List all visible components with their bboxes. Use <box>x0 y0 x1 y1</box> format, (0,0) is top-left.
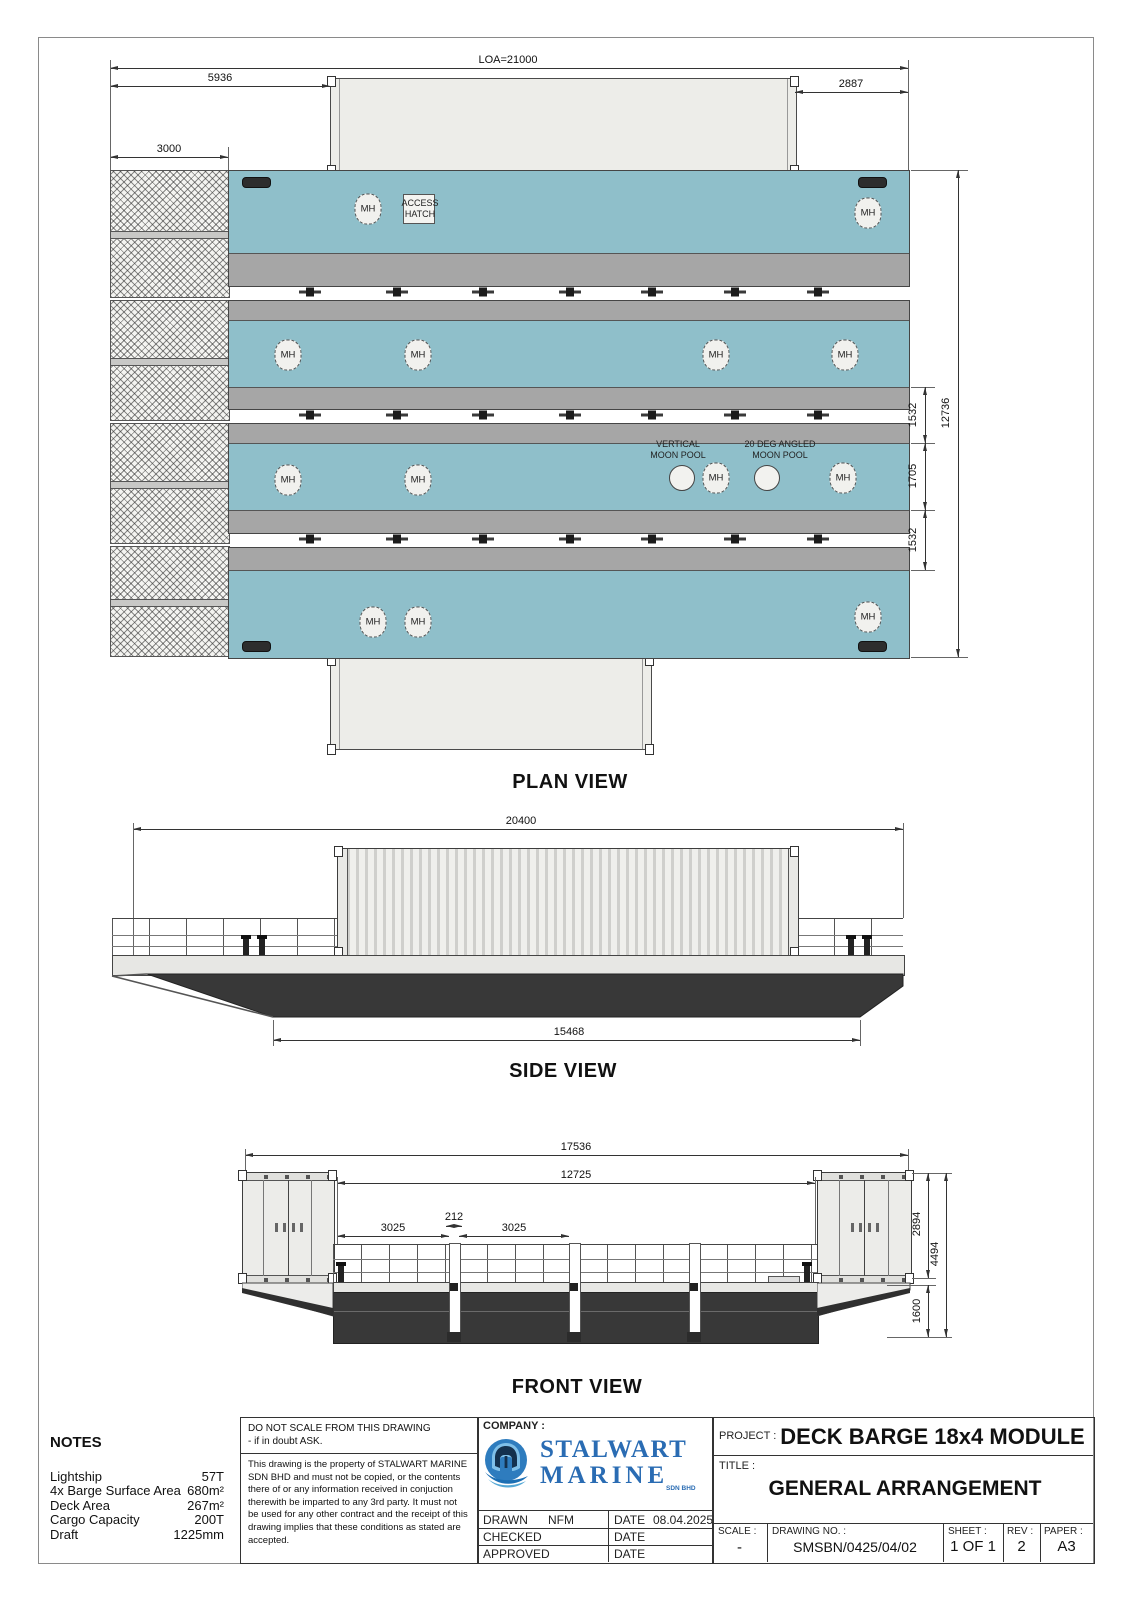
module-connector-icon <box>472 538 494 541</box>
module-connector-icon <box>559 291 581 294</box>
bow-ramp-4 <box>110 546 230 657</box>
module-connector-icon <box>559 414 581 417</box>
deck-cleat <box>242 641 271 652</box>
drawn-date-value: 08.04.2025 <box>653 1513 713 1527</box>
module-connector-icon <box>724 291 746 294</box>
hull-column-foot <box>567 1332 581 1342</box>
container-corner-fitting <box>334 846 343 857</box>
title-label: TITLE : <box>719 1460 755 1472</box>
bow-ramp-3 <box>110 423 230 544</box>
side-container <box>337 848 799 957</box>
module-connector-icon <box>641 414 663 417</box>
hull-column-foot <box>687 1332 701 1342</box>
notes-row: Lightship57T <box>50 1469 224 1484</box>
dim-label-spacing-bottom: 1532 <box>907 528 919 552</box>
dim-label-side-bottom: 15468 <box>554 1026 585 1038</box>
module-connector-icon <box>299 414 321 417</box>
extension-line <box>908 1149 909 1172</box>
notes-title: NOTES <box>50 1434 102 1451</box>
dim-label-bay-left: 3025 <box>381 1222 405 1234</box>
container-corner-fitting <box>238 1170 247 1181</box>
container-corner-fitting <box>790 846 799 857</box>
dim-line-front-overall <box>245 1155 908 1156</box>
manhole-marker: MH <box>832 340 859 371</box>
divider <box>240 1453 477 1454</box>
notes-row: Cargo Capacity200T <box>50 1512 224 1527</box>
drawn-label: DRAWN <box>483 1513 528 1527</box>
module-connector-icon <box>559 538 581 541</box>
approved-date-label: DATE <box>614 1547 645 1561</box>
dim-label-front-deck: 12725 <box>561 1169 592 1181</box>
drawing-no-label: DRAWING NO. : <box>772 1526 846 1537</box>
manhole-label: MH <box>861 208 876 219</box>
do-not-scale-warning: DO NOT SCALE FROM THIS DRAWING- if in do… <box>248 1422 472 1448</box>
manhole-marker: MH <box>855 602 882 633</box>
dim-line-moonpool-bay <box>925 443 926 510</box>
dim-line-front-deck <box>337 1183 815 1184</box>
dim-line-fore <box>110 86 330 87</box>
module-connector-icon <box>807 291 829 294</box>
manhole-marker: MH <box>855 198 882 229</box>
dim-label-overall-height: 4494 <box>929 1242 941 1266</box>
extension-line <box>815 1177 816 1244</box>
container-corner-fitting <box>790 76 799 87</box>
dim-label-spacing-top: 1532 <box>907 403 919 427</box>
extension-line <box>245 1149 246 1172</box>
manhole-label: MH <box>836 473 851 484</box>
extension-line <box>911 657 968 658</box>
front-container-left <box>242 1172 335 1284</box>
dim-label-hull-depth: 1600 <box>911 1299 923 1323</box>
bow-ramp-1 <box>110 170 230 298</box>
dim-line-hull-depth <box>928 1285 929 1337</box>
module-connector-icon <box>724 414 746 417</box>
front-railing-bay <box>333 1244 449 1283</box>
barge-module-2 <box>228 300 910 410</box>
company-label: COMPANY : <box>483 1420 545 1432</box>
dim-label-loa: LOA=21000 <box>478 54 537 66</box>
front-railing-bay <box>579 1244 689 1283</box>
brand-suffix: SDN BHD <box>666 1485 696 1492</box>
dim-line-post <box>446 1226 462 1227</box>
module-connector-icon <box>807 538 829 541</box>
manhole-marker: MH <box>703 463 730 494</box>
divider <box>477 1528 712 1529</box>
module-connector-icon <box>472 291 494 294</box>
side-railing-fore <box>112 918 337 956</box>
bollard <box>848 935 854 955</box>
sheet-value: 1 OF 1 <box>943 1538 1003 1555</box>
checked-label: CHECKED <box>483 1530 542 1544</box>
bollard <box>864 935 870 955</box>
brand-name-line1: STALWART <box>540 1436 687 1464</box>
manhole-label: MH <box>411 617 426 628</box>
module-connector-icon <box>472 414 494 417</box>
container-corner-fitting <box>645 744 654 755</box>
bollard <box>243 935 249 955</box>
manhole-label: MH <box>861 612 876 623</box>
dim-line-side-overall <box>133 829 903 830</box>
bow-ramp-2 <box>110 300 230 421</box>
title-value: GENERAL ARRANGEMENT <box>720 1477 1090 1501</box>
stalwart-marine-logo <box>482 1436 532 1490</box>
hull-column-bolt <box>570 1283 578 1291</box>
module-connector-icon <box>386 291 408 294</box>
bollard <box>259 935 265 955</box>
plan-container-top <box>330 78 797 174</box>
divider <box>608 1510 609 1562</box>
paper-value: A3 <box>1040 1538 1093 1555</box>
checked-date-label: DATE <box>614 1530 645 1544</box>
bollard <box>804 1262 810 1282</box>
module-connector-icon <box>386 538 408 541</box>
extension-line <box>887 1337 952 1338</box>
container-corner-fitting <box>905 1170 914 1181</box>
dim-line-ramp <box>110 157 228 158</box>
notes-row: 4x Barge Surface Area680m² <box>50 1483 224 1498</box>
manhole-marker: MH <box>355 194 382 225</box>
manhole-label: MH <box>281 350 296 361</box>
front-view-caption: FRONT VIEW <box>512 1376 643 1399</box>
manhole-marker: MH <box>275 465 302 496</box>
dim-label-container-height: 2894 <box>911 1212 923 1236</box>
notes-row: Deck Area267m² <box>50 1498 224 1513</box>
manhole-marker: MH <box>405 465 432 496</box>
hull-column-bolt <box>690 1283 698 1291</box>
angled-moon-pool-label: 20 DEG ANGLED MOON POOL <box>734 439 826 460</box>
extension-line <box>912 1278 936 1279</box>
sheet-label: SHEET : <box>948 1526 987 1537</box>
barge-module-1 <box>228 170 910 287</box>
manhole-label: MH <box>709 473 724 484</box>
container-corner-fitting <box>327 744 336 755</box>
bollard <box>338 1262 344 1282</box>
dim-line-aft <box>795 92 908 93</box>
divider <box>712 1523 1093 1524</box>
extension-line <box>110 60 111 170</box>
divider <box>477 1510 712 1511</box>
module-connector-icon <box>724 538 746 541</box>
divider <box>712 1455 1093 1456</box>
dim-label-post: 212 <box>445 1211 463 1223</box>
module-connector-icon <box>641 538 663 541</box>
brand-name-line2: MARINE <box>540 1462 668 1490</box>
container-corner-fitting <box>328 1170 337 1181</box>
module-connector-icon <box>299 291 321 294</box>
paper-label: PAPER : <box>1044 1526 1083 1537</box>
plan-container-bottom <box>330 657 652 750</box>
front-container-right <box>817 1172 912 1284</box>
manhole-label: MH <box>709 350 724 361</box>
notes-row: Draft1225mm <box>50 1527 224 1542</box>
dim-label-moonpool-bay: 1705 <box>907 464 919 488</box>
dim-line-spacing-top <box>925 387 926 443</box>
manhole-label: MH <box>838 350 853 361</box>
manhole-label: MH <box>361 204 376 215</box>
vertical-moon-pool <box>669 465 695 491</box>
deck-cleat <box>858 641 887 652</box>
dim-label-front-overall: 17536 <box>561 1141 592 1153</box>
extension-line <box>273 1020 274 1046</box>
access-hatch-label: ACCESS HATCH <box>394 198 446 219</box>
dim-line-loa <box>110 68 908 69</box>
manhole-marker: MH <box>405 340 432 371</box>
side-hull-shape <box>100 968 930 1028</box>
front-support-right <box>817 1280 911 1344</box>
rev-label: REV : <box>1007 1526 1033 1537</box>
extension-line <box>337 1177 338 1244</box>
extension-line <box>228 147 229 170</box>
dim-label-bay-right: 3025 <box>502 1222 526 1234</box>
manhole-label: MH <box>281 475 296 486</box>
manhole-label: MH <box>366 617 381 628</box>
dim-label-side-overall: 20400 <box>506 815 537 827</box>
module-connector-icon <box>386 414 408 417</box>
drawn-value: NFM <box>548 1513 574 1527</box>
approved-label: APPROVED <box>483 1547 550 1561</box>
module-connector-icon <box>807 414 829 417</box>
side-view-caption: SIDE VIEW <box>509 1060 617 1083</box>
rev-value: 2 <box>1003 1538 1040 1555</box>
dim-label-ramp: 3000 <box>157 143 181 155</box>
extension-line <box>911 570 935 571</box>
dim-line-bay-right <box>459 1236 569 1237</box>
deck-cleat <box>858 177 887 188</box>
manhole-label: MH <box>411 350 426 361</box>
manhole-marker: MH <box>405 607 432 638</box>
deck-cleat <box>242 177 271 188</box>
project-value: DECK BARGE 18x4 MODULE <box>775 1424 1090 1450</box>
vertical-moon-pool-label: VERTICAL MOON POOL <box>647 439 709 460</box>
scale-value: - <box>712 1539 767 1556</box>
front-support-left <box>242 1280 334 1344</box>
extension-line <box>860 1020 861 1046</box>
dim-line-overall-height <box>946 1173 947 1337</box>
manhole-marker: MH <box>703 340 730 371</box>
drawn-date-label: DATE <box>614 1513 645 1527</box>
dim-label-aft: 2887 <box>839 78 863 90</box>
extension-line <box>908 60 909 170</box>
manhole-label: MH <box>411 475 426 486</box>
hull-column-foot <box>447 1332 461 1342</box>
manhole-marker: MH <box>830 463 857 494</box>
dim-line-bay-left <box>337 1236 449 1237</box>
plan-view-caption: PLAN VIEW <box>512 771 628 794</box>
project-label: PROJECT : <box>719 1430 776 1442</box>
ownership-statement: This drawing is the property of STALWART… <box>248 1459 470 1547</box>
front-railing-bay <box>459 1244 569 1283</box>
drawing-sheet: MH MH MH MH MH MH MH MH MH MH MH MH MH A… <box>0 0 1131 1600</box>
barge-module-4 <box>228 547 910 659</box>
dim-line-side-bottom <box>273 1040 860 1041</box>
drawing-no-value: SMSBN/0425/04/02 <box>767 1539 943 1555</box>
dim-label-fore: 5936 <box>208 72 232 84</box>
hull-column-bolt <box>450 1283 458 1291</box>
scale-label: SCALE : <box>718 1526 756 1537</box>
divider <box>477 1545 712 1546</box>
extension-line <box>903 823 904 918</box>
manhole-marker: MH <box>275 340 302 371</box>
module-connector-icon <box>299 538 321 541</box>
dim-label-breadth: 12736 <box>940 398 952 429</box>
dim-line-spacing-bottom <box>925 510 926 570</box>
angled-moon-pool <box>754 465 780 491</box>
dim-line-breadth <box>958 170 959 657</box>
module-connector-icon <box>641 291 663 294</box>
manhole-marker: MH <box>360 607 387 638</box>
